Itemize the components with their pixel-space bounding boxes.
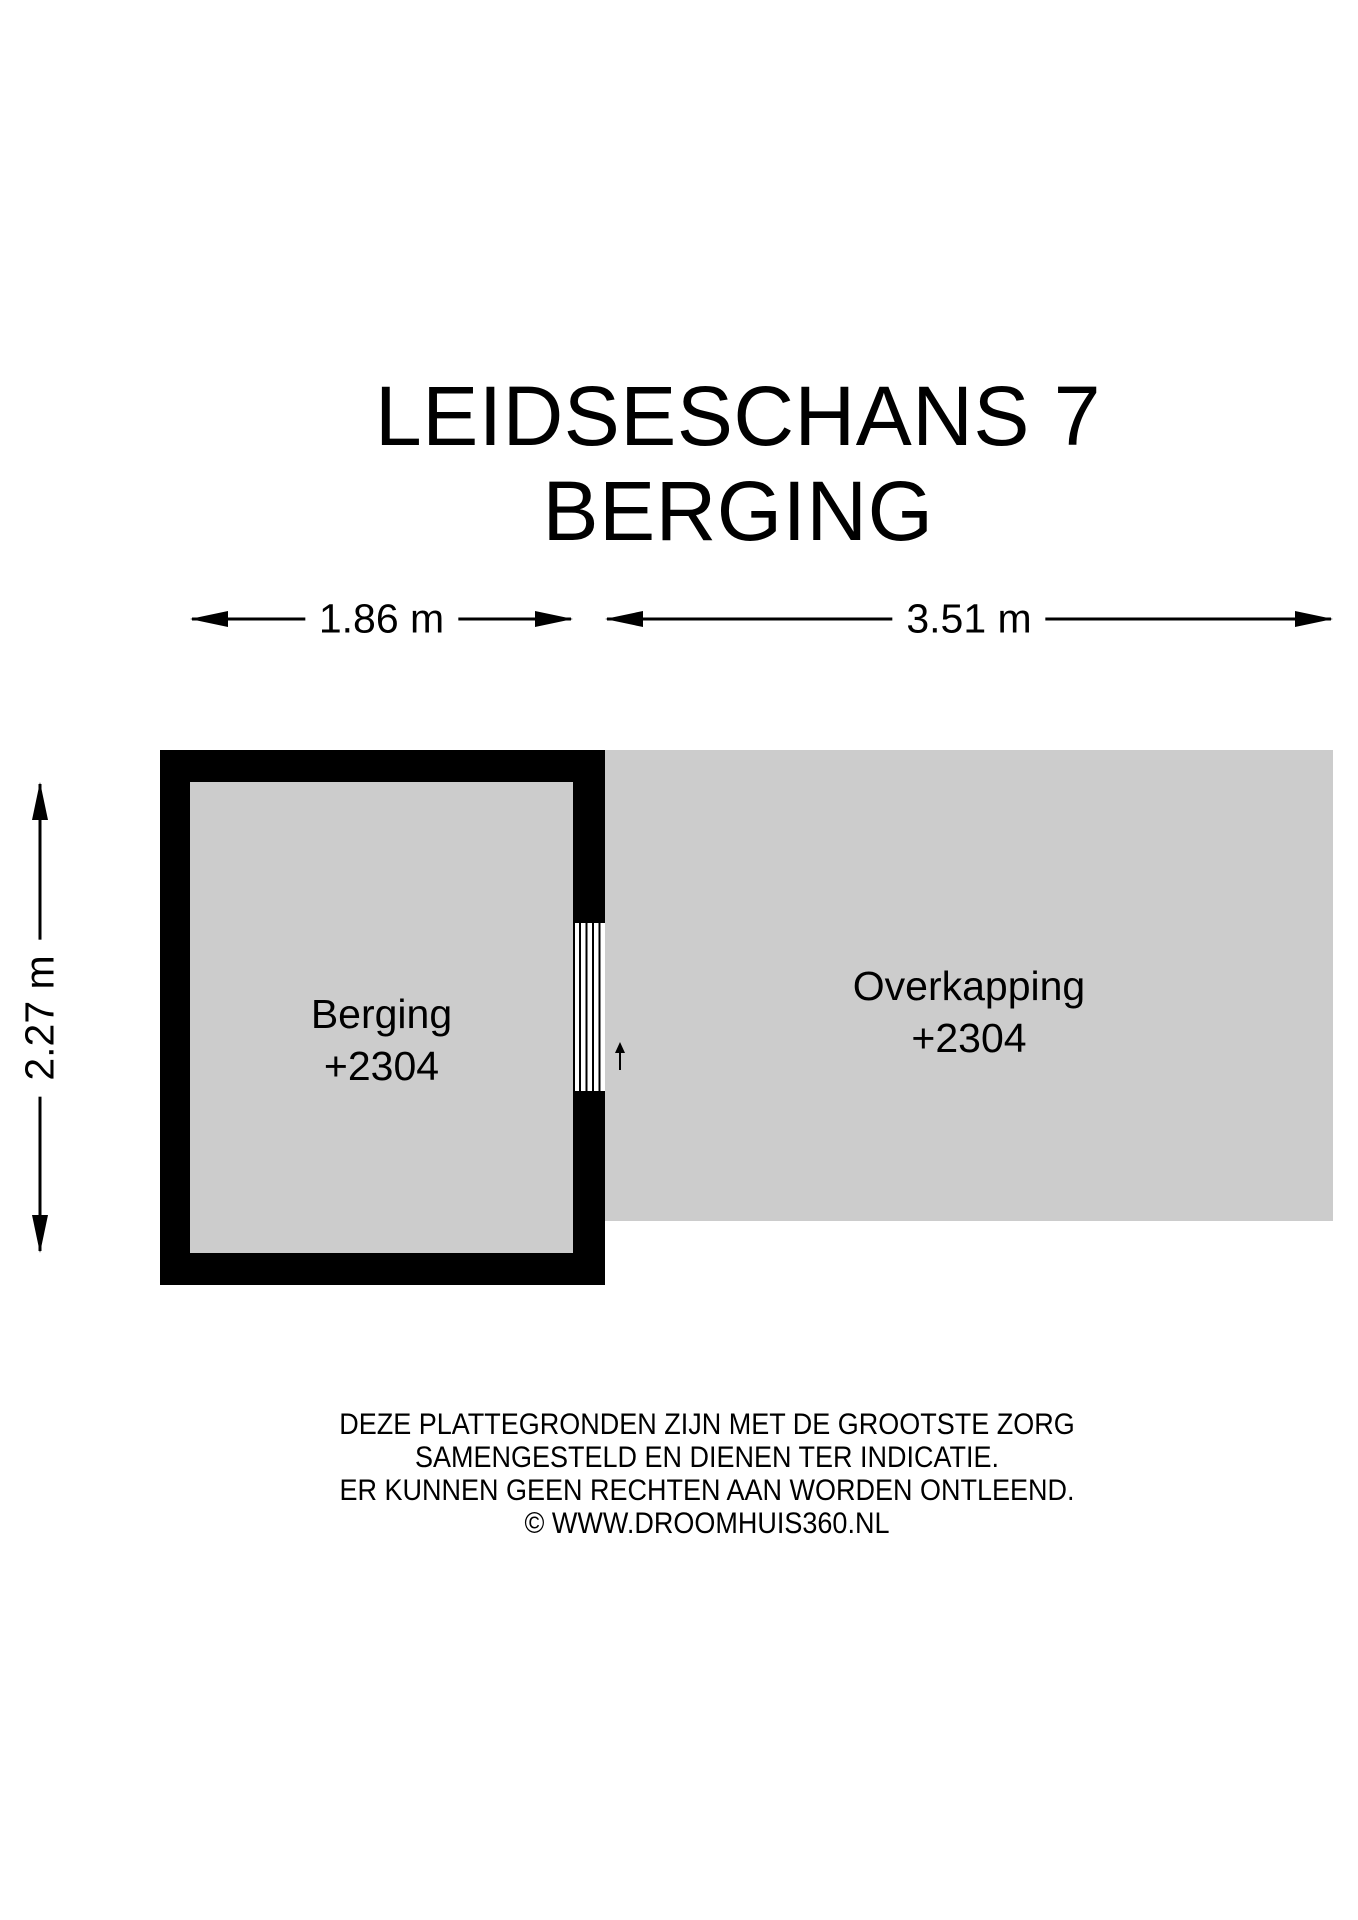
dimension-label: 2.27 m	[16, 939, 63, 1096]
dimension-label: 3.51 m	[892, 595, 1045, 642]
copyright-line: © WWW.DROOMHUIS360.NL	[339, 1507, 1075, 1540]
title-floor-name: BERGING	[375, 464, 1101, 559]
dimension-berging-width: 1.86 m	[190, 600, 573, 637]
disclaimer-line: ER KUNNEN GEEN RECHTEN AAN WORDEN ONTLEE…	[339, 1474, 1075, 1507]
dimension-overkapping-width: 3.51 m	[605, 600, 1333, 637]
disclaimer: DEZE PLATTEGRONDEN ZIJN MET DE GROOTSTE …	[339, 1408, 1075, 1540]
room-level: +2304	[190, 1040, 573, 1092]
overkapping-label: Overkapping +2304	[605, 960, 1333, 1064]
door-opening	[573, 923, 605, 1091]
arrowhead-right-icon	[1295, 611, 1333, 627]
room-name: Berging	[190, 988, 573, 1040]
dimension-label: 1.86 m	[305, 595, 458, 642]
dimension-berging-height: 2.27 m	[21, 782, 58, 1253]
arrowhead-right-icon	[535, 611, 573, 627]
arrowhead-up-icon	[32, 782, 48, 820]
disclaimer-line: DEZE PLATTEGRONDEN ZIJN MET DE GROOTSTE …	[339, 1408, 1075, 1441]
title-address: LEIDSESCHANS 7	[375, 369, 1101, 464]
disclaimer-line: SAMENGESTELD EN DIENEN TER INDICATIE.	[339, 1441, 1075, 1474]
room-level: +2304	[605, 1012, 1333, 1064]
page-title: LEIDSESCHANS 7 BERGING	[375, 369, 1101, 559]
arrowhead-down-icon	[32, 1215, 48, 1253]
arrowhead-left-icon	[605, 611, 643, 627]
floorplan-page: LEIDSESCHANS 7 BERGING 1.86 m 3.51 m 2.2…	[0, 0, 1358, 1920]
berging-label: Berging +2304	[190, 988, 573, 1092]
room-name: Overkapping	[605, 960, 1333, 1012]
arrowhead-left-icon	[190, 611, 228, 627]
